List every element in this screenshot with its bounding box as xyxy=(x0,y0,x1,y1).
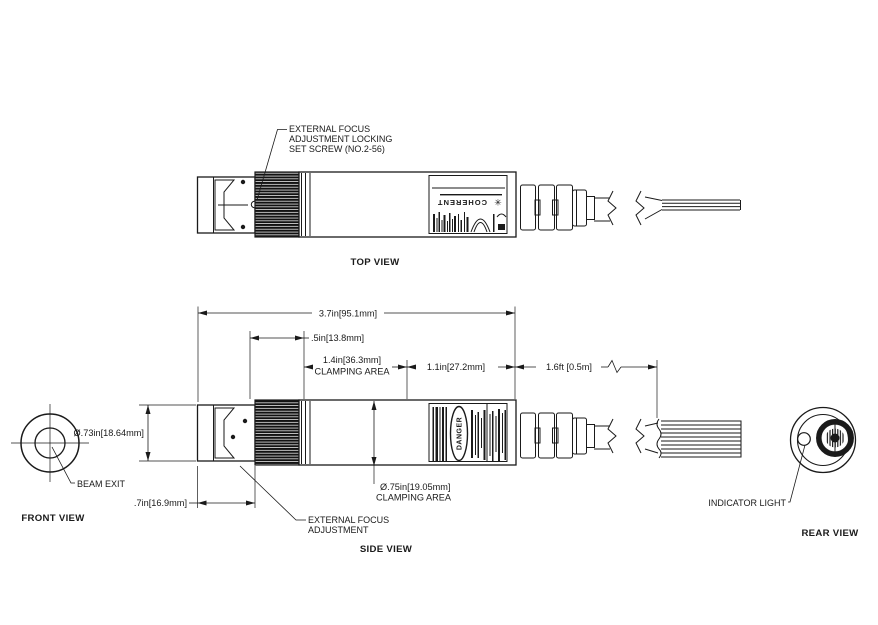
dim-head-diameter: Ø.73in[18.64mm] xyxy=(74,405,196,461)
dim-cable-length: 1.6ft [0.5m] xyxy=(515,361,657,373)
focus-adjustment-line2: ADJUSTMENT xyxy=(308,525,369,535)
dim-focus-ring-text: .5in[13.8mm] xyxy=(311,333,364,343)
side-focus-head xyxy=(198,405,256,461)
set-screw-dot xyxy=(241,180,245,184)
dim-head-length: .7in[16.9mm] xyxy=(134,466,255,508)
indicator-light-text: INDICATOR LIGHT xyxy=(708,498,786,508)
top-wire-leads xyxy=(662,200,741,210)
dim-head-length-text: .7in[16.9mm] xyxy=(134,498,187,508)
side-view-label: SIDE VIEW xyxy=(360,544,413,555)
dim-rear-section: 1.1in[27.2mm] xyxy=(407,362,515,372)
side-ribbon-leads xyxy=(657,419,741,458)
set-screw-callout-line2: ADJUSTMENT LOCKING xyxy=(289,134,392,144)
cable-break-symbol xyxy=(608,191,616,225)
dim-clamping-length-text1: 1.4in[36.3mm] xyxy=(323,355,381,365)
dim-overall-length-text: 3.7in[95.1mm] xyxy=(319,309,377,319)
rear-view: INDICATOR LIGHT REAR VIEW xyxy=(708,408,859,540)
cable-break-symbol xyxy=(636,419,644,453)
front-view-label: FRONT VIEW xyxy=(21,513,85,524)
top-view-label: TOP VIEW xyxy=(351,257,401,268)
beam-exit-text: BEAM EXIT xyxy=(77,479,126,489)
danger-text: DANGER xyxy=(457,417,464,450)
top-focus-head xyxy=(198,177,258,233)
side-cable xyxy=(594,419,658,453)
dim-clamping-length-text2: CLAMPING AREA xyxy=(314,367,390,377)
top-view: COHERENT ✳ xyxy=(198,124,741,268)
top-focus-knurl xyxy=(255,172,299,237)
side-body xyxy=(299,400,516,465)
set-screw-callout-line1: EXTERNAL FOCUS xyxy=(289,124,370,134)
set-screw-dot xyxy=(243,419,247,423)
side-focus-knurl xyxy=(255,400,299,465)
dim-rear-section-text: 1.1in[27.2mm] xyxy=(427,362,485,372)
top-cable xyxy=(594,191,741,225)
dim-clamping-diameter-text2: CLAMPING AREA xyxy=(376,493,452,503)
set-screw-dot xyxy=(231,435,235,439)
cable-break-symbol xyxy=(636,191,644,225)
cable-break-symbol xyxy=(608,419,616,453)
dim-clamping-length: 1.4in[36.3mm] CLAMPING AREA xyxy=(304,355,407,377)
focus-adjustment-callout: EXTERNAL FOCUS ADJUSTMENT xyxy=(240,466,389,535)
brand-logo-icon: ✳ xyxy=(494,197,502,207)
rear-view-label: REAR VIEW xyxy=(801,528,859,539)
dim-focus-ring-length: .5in[13.8mm] xyxy=(250,333,364,343)
side-view: DANGER xyxy=(198,400,742,555)
top-strain-relief xyxy=(521,185,595,230)
set-screw-callout-line3: SET SCREW (NO.2-56) xyxy=(289,144,385,154)
dim-overall-length: 3.7in[95.1mm] xyxy=(198,309,515,319)
indicator-light xyxy=(798,433,811,446)
dim-clamping-diameter-text1: Ø.75in[19.05mm] xyxy=(380,482,450,492)
dim-cable-length-text: 1.6ft [0.5m] xyxy=(546,362,592,372)
dim-head-diameter-text: Ø.73in[18.64mm] xyxy=(74,428,144,438)
technical-drawing-canvas: COHERENT ✳ xyxy=(0,0,878,625)
set-screw-dot xyxy=(241,225,245,229)
side-strain-relief xyxy=(521,413,595,458)
brand-text: COHERENT xyxy=(437,198,487,207)
indicator-light-callout: INDICATOR LIGHT xyxy=(708,445,805,508)
focus-adjustment-line1: EXTERNAL FOCUS xyxy=(308,515,389,525)
